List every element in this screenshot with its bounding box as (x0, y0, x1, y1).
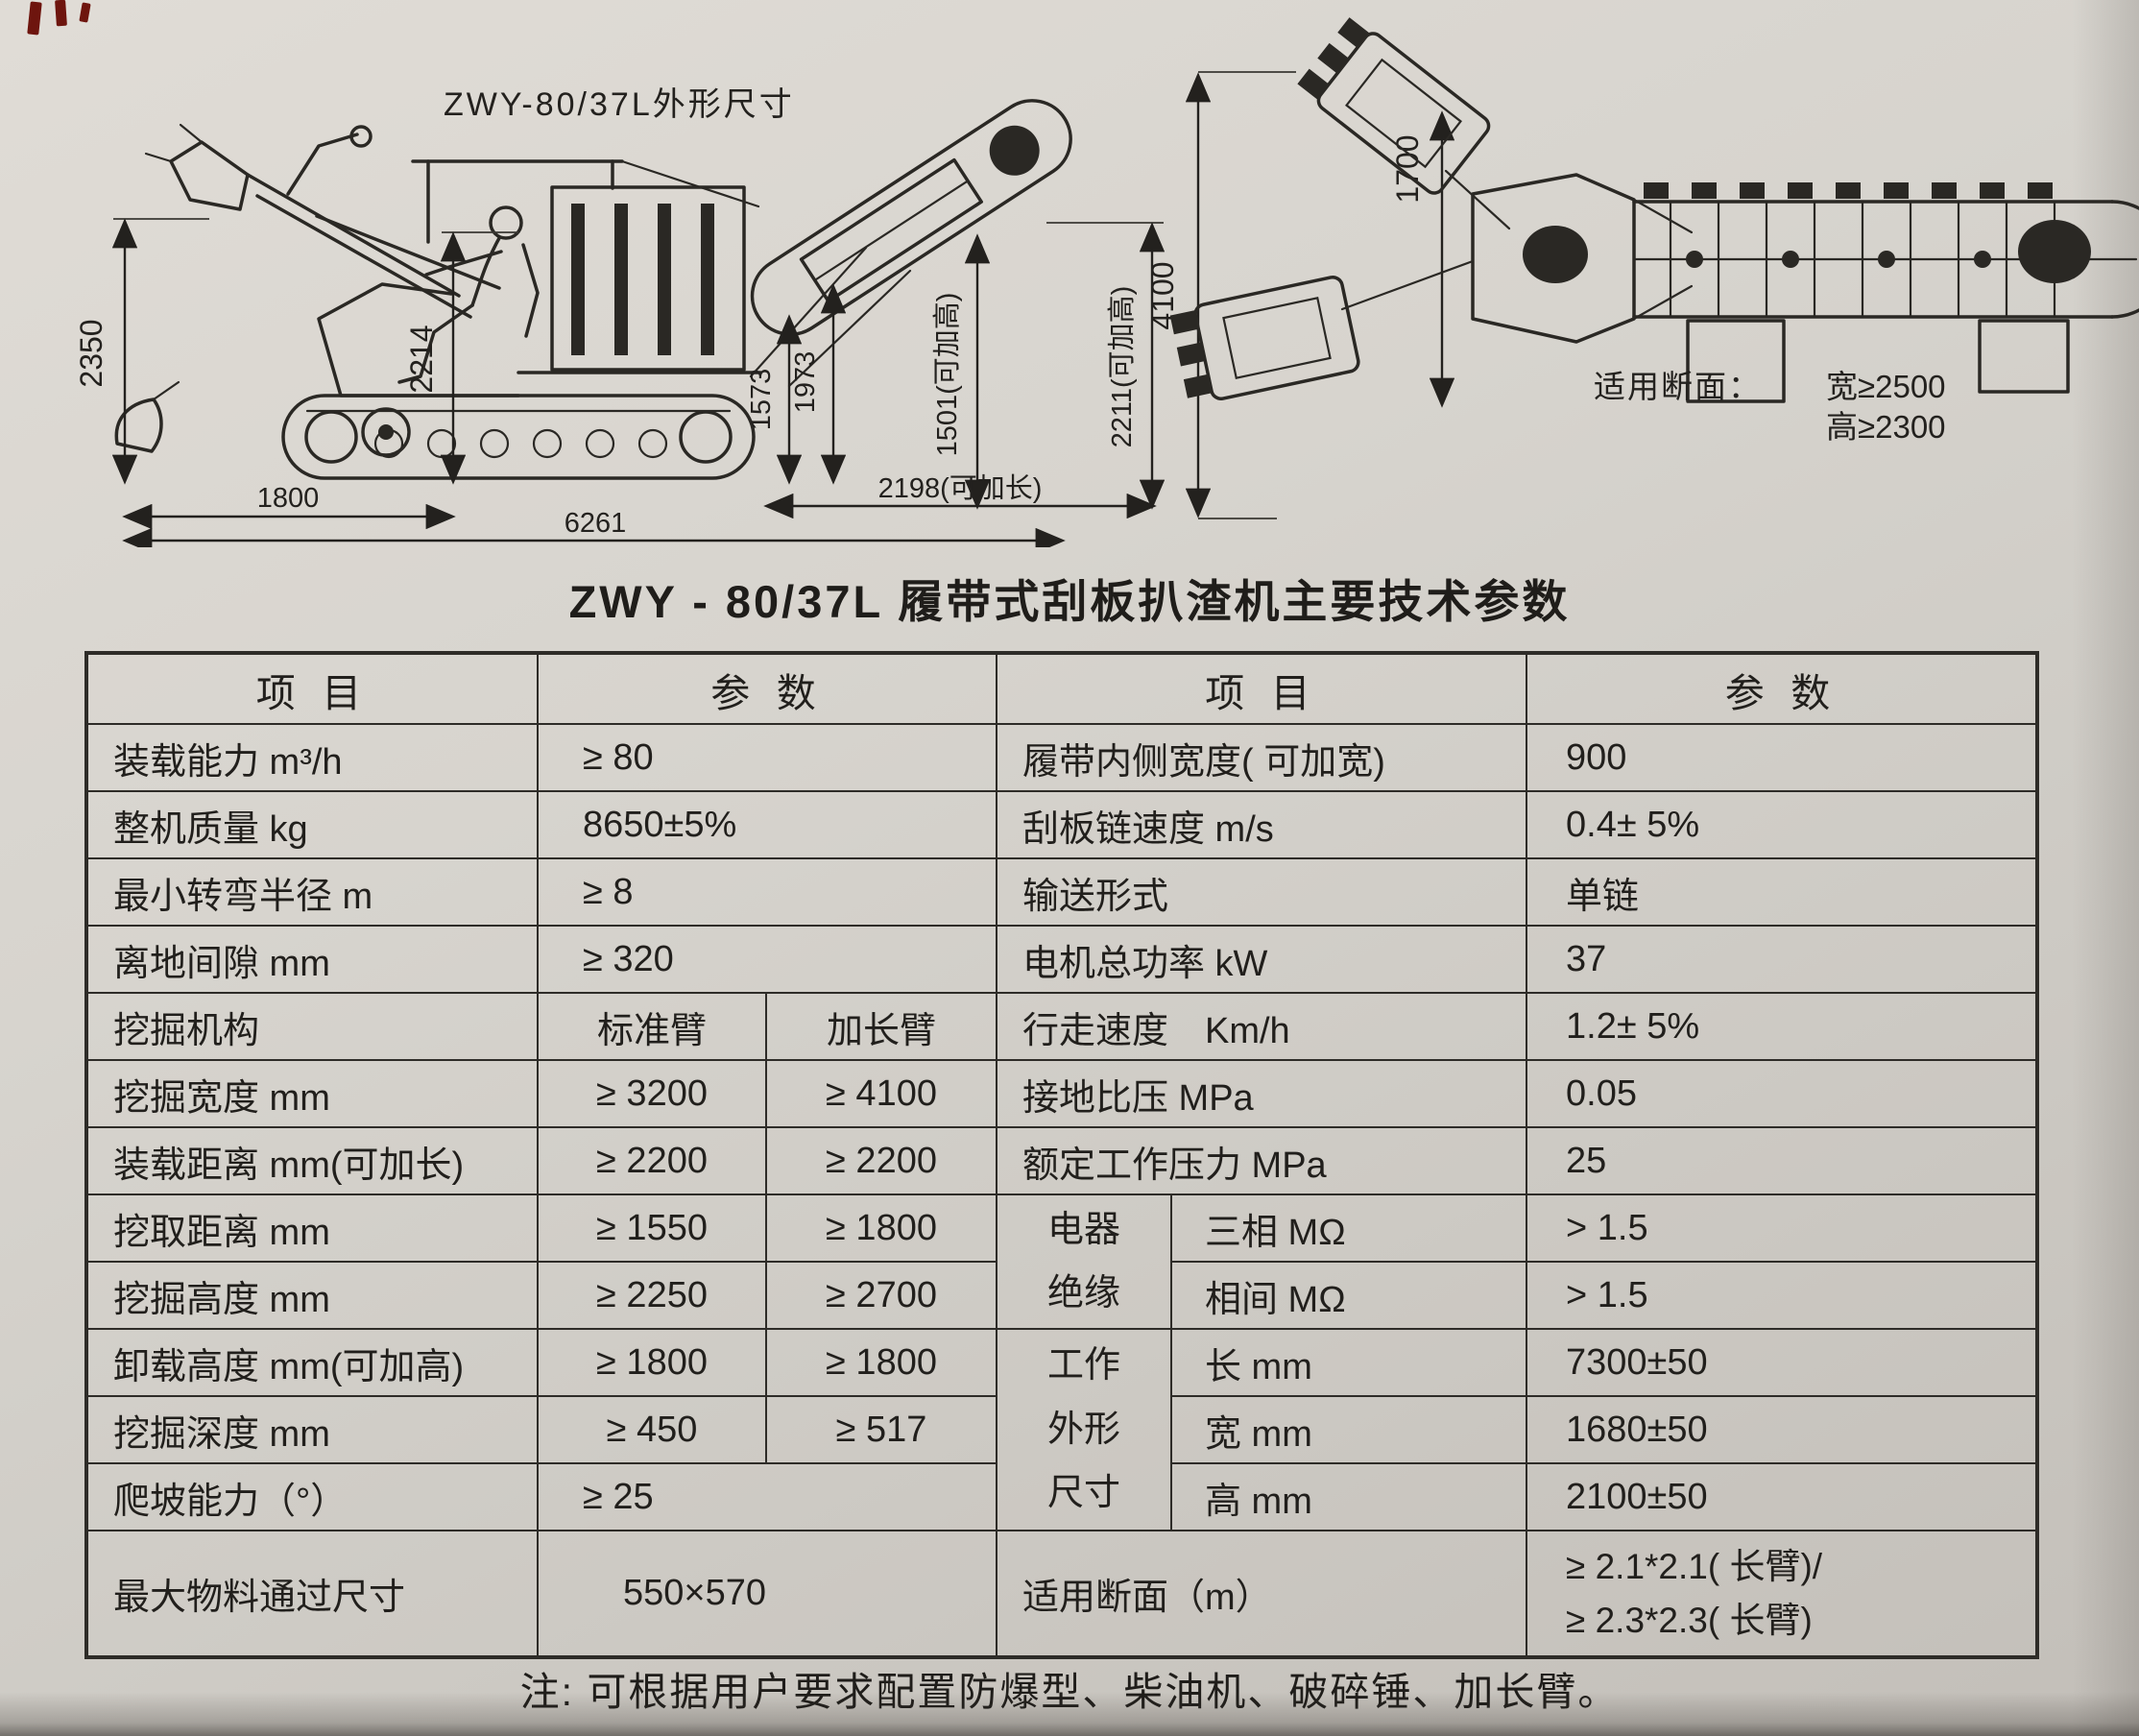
dim-1700: 1700 (1390, 134, 1425, 203)
table-row: 整机质量 kg 8650±5% 刮板链速度 m/s 0.4± 5% (86, 791, 2037, 858)
row-value: 8650±5% (538, 791, 997, 858)
header-param-right: 参 数 (1526, 653, 2037, 724)
dim-1800: 1800 (257, 483, 320, 514)
row-value: ≥ 80 (538, 724, 997, 791)
group-line: 工作 (997, 1334, 1170, 1398)
group-line: 尺寸 (997, 1461, 1170, 1526)
row-value-standard: ≥ 1800 (538, 1329, 766, 1396)
header-param-left: 参 数 (538, 653, 997, 724)
row-value: ≥ 2.1*2.1( 长臂)/ ≥ 2.3*2.3( 长臂) (1526, 1531, 2037, 1657)
row-item: 挖掘机构 (86, 993, 538, 1060)
boom-arm (146, 125, 499, 317)
arm-extended-header: 加长臂 (766, 993, 997, 1060)
row-value-extended: ≥ 517 (766, 1396, 997, 1463)
row-value: > 1.5 (1526, 1262, 2037, 1329)
row-value-standard: ≥ 3200 (538, 1060, 766, 1127)
row-item: 挖掘宽度 mm (86, 1060, 538, 1127)
row-value: 1680±50 (1526, 1396, 2037, 1463)
row-item: 卸载高度 mm(可加高) (86, 1329, 538, 1396)
electrical-insulation-group: 电器 绝缘 (997, 1194, 1171, 1329)
row-value-standard: ≥ 2200 (538, 1127, 766, 1194)
row-item: 整机质量 kg (86, 791, 538, 858)
row-value: 25 (1526, 1127, 2037, 1194)
arm-standard-header: 标准臂 (538, 993, 766, 1060)
row-item: 最小转弯半径 m (86, 858, 538, 926)
table-row: 最大物料通过尺寸 550×570 适用断面（m） ≥ 2.1*2.1( 长臂)/… (86, 1531, 2037, 1657)
dim-2198: 2198(可加长) (878, 472, 1043, 504)
row-item: 额定工作压力 MPa (997, 1127, 1526, 1194)
section-note-height: 高≥2300 (1826, 409, 1946, 445)
row-item: 电机总功率 kW (997, 926, 1526, 993)
working-dimensions-group: 工作 外形 尺寸 (997, 1329, 1171, 1531)
row-item: 行走速度 Km/h (997, 993, 1526, 1060)
row-value: > 1.5 (1526, 1194, 2037, 1262)
table-row: 挖掘机构 标准臂 加长臂 行走速度 Km/h 1.2± 5% (86, 993, 2037, 1060)
header-item-right: 项 目 (997, 653, 1526, 724)
row-value: 7300±50 (1526, 1329, 2037, 1396)
row-value-standard: ≥ 450 (538, 1396, 766, 1463)
row-item: 最大物料通过尺寸 (86, 1531, 538, 1657)
section-note: 适用断面： 宽≥2500 高≥2300 (1594, 369, 1946, 445)
row-value: 1.2± 5% (1526, 993, 2037, 1060)
row-value: ≥ 25 (538, 1463, 997, 1531)
row-item: 爬坡能力（°） (86, 1463, 538, 1531)
group-line: 电器 (997, 1198, 1170, 1263)
row-value-extended: ≥ 2200 (766, 1127, 997, 1194)
side-view-drawing: ZWY-80/37L外形尺寸 (74, 85, 1164, 541)
section-note-label: 适用断面： (1594, 369, 1762, 404)
row-value: 37 (1526, 926, 2037, 993)
row-subitem: 宽 mm (1171, 1396, 1526, 1463)
row-value: 900 (1526, 724, 2037, 791)
row-subitem: 高 mm (1171, 1463, 1526, 1531)
row-item: 挖掘深度 mm (86, 1396, 538, 1463)
row-value-standard: ≥ 2250 (538, 1262, 766, 1329)
group-line: 绝缘 (997, 1262, 1170, 1326)
row-item: 离地间隙 mm (86, 926, 538, 993)
row-value: 0.05 (1526, 1060, 2037, 1127)
group-line: 外形 (997, 1398, 1170, 1462)
row-value: 2100±50 (1526, 1463, 2037, 1531)
table-row: 装载能力 m³/h ≥ 80 履带内侧宽度( 可加宽) 900 (86, 724, 2037, 791)
row-item: 履带内侧宽度( 可加宽) (997, 724, 1526, 791)
crawler-track (283, 396, 754, 478)
table-row: 挖取距离 mm ≥ 1550 ≥ 1800 电器 绝缘 三相 MΩ > 1.5 (86, 1194, 2037, 1262)
table-row: 离地间隙 mm ≥ 320 电机总功率 kW 37 (86, 926, 2037, 993)
top-view-drawing: 4100 1700 (1145, 14, 2139, 518)
dim-1573: 1573 (746, 369, 777, 431)
row-item: 输送形式 (997, 858, 1526, 926)
row-item: 挖取距离 mm (86, 1194, 538, 1262)
row-item: 适用断面（m） (997, 1531, 1526, 1657)
value-line: ≥ 2.3*2.3( 长臂) (1566, 1594, 2035, 1648)
section-note-width: 宽≥2500 (1826, 369, 1946, 404)
row-item: 装载距离 mm(可加长) (86, 1127, 538, 1194)
row-subitem: 三相 MΩ (1171, 1194, 1526, 1262)
row-value-extended: ≥ 2700 (766, 1262, 997, 1329)
row-subitem: 长 mm (1171, 1329, 1526, 1396)
row-item: 刮板链速度 m/s (997, 791, 1526, 858)
row-value: 550×570 (538, 1531, 997, 1657)
dim-1973: 1973 (790, 351, 821, 414)
spec-table: 项 目 参 数 项 目 参 数 装载能力 m³/h ≥ 80 履带内侧宽度( 可… (84, 651, 2039, 1659)
header-item-left: 项 目 (86, 653, 538, 724)
table-row: 最小转弯半径 m ≥ 8 输送形式 单链 (86, 858, 2037, 926)
row-value-standard: ≥ 1550 (538, 1194, 766, 1262)
dim-2211: 2211(可加高) (1106, 286, 1138, 448)
value-line: ≥ 2.1*2.1( 长臂)/ (1566, 1540, 2035, 1594)
footnote: 注: 可根据用户要求配置防爆型、柴油机、破碎锤、加长臂。 (0, 1659, 2139, 1717)
dim-1501: 1501(可加高) (931, 293, 963, 457)
table-row: 卸载高度 mm(可加高) ≥ 1800 ≥ 1800 工作 外形 尺寸 长 mm… (86, 1329, 2037, 1396)
row-subitem: 相间 MΩ (1171, 1262, 1526, 1329)
row-value: 0.4± 5% (1526, 791, 2037, 858)
row-value-extended: ≥ 4100 (766, 1060, 997, 1127)
table-row: 装载距离 mm(可加长) ≥ 2200 ≥ 2200 额定工作压力 MPa 25 (86, 1127, 2037, 1194)
row-value-extended: ≥ 1800 (766, 1194, 997, 1262)
row-value-extended: ≥ 1800 (766, 1329, 997, 1396)
row-item: 挖掘高度 mm (86, 1262, 538, 1329)
spec-sheet-page: ZWY-80/37L外形尺寸 (0, 0, 2139, 1736)
row-item: 接地比压 MPa (997, 1060, 1526, 1127)
dim-2350: 2350 (74, 319, 108, 387)
technical-drawings: ZWY-80/37L外形尺寸 (0, 0, 2139, 547)
row-value: ≥ 8 (538, 858, 997, 926)
side-view-caption: ZWY-80/37L外形尺寸 (444, 86, 795, 123)
top-view-dimensions: 4100 1700 (1145, 72, 1442, 518)
gathering-arm-lower (1169, 261, 1473, 406)
table-header-row: 项 目 参 数 项 目 参 数 (86, 653, 2037, 724)
row-value: ≥ 320 (538, 926, 997, 993)
row-value: 单链 (1526, 858, 2037, 926)
page-title: ZWY - 80/37L 履带式刮板扒渣机主要技术参数 (0, 565, 2139, 631)
table-row: 挖掘宽度 mm ≥ 3200 ≥ 4100 接地比压 MPa 0.05 (86, 1060, 2037, 1127)
row-item: 装载能力 m³/h (86, 724, 538, 791)
dim-2214: 2214 (404, 325, 439, 393)
dim-6261: 6261 (565, 508, 627, 539)
